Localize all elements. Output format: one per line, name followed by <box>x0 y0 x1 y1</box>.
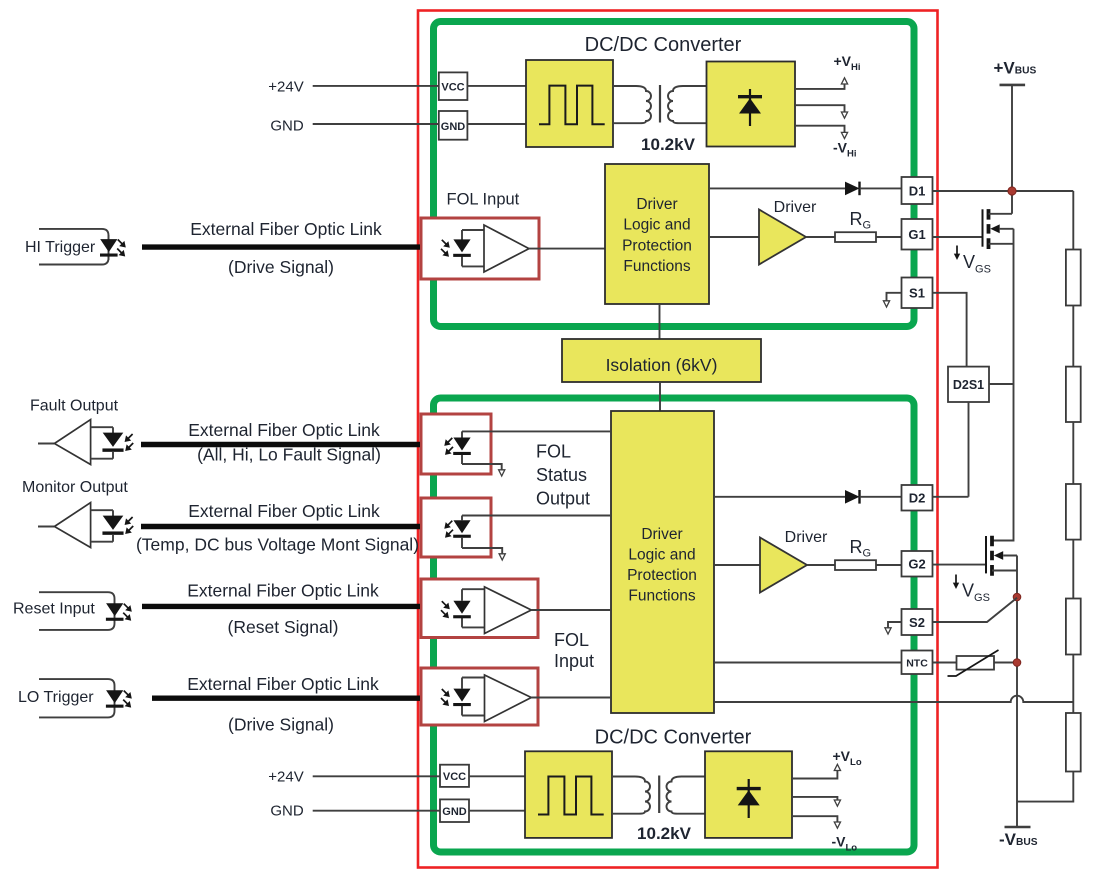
svg-text:(Temp, DC bus Voltage Mont Sig: (Temp, DC bus Voltage Mont Signal) <box>136 535 419 555</box>
svg-text:G1: G1 <box>908 227 925 242</box>
svg-text:Logic and: Logic and <box>623 217 690 234</box>
svg-text:Functions: Functions <box>628 588 695 605</box>
svg-text:External Fiber Optic Link: External Fiber Optic Link <box>187 581 379 601</box>
svg-text:+24V: +24V <box>268 79 303 96</box>
svg-text:+VBUS: +VBUS <box>994 59 1037 78</box>
svg-text:S1: S1 <box>909 286 925 301</box>
svg-text:RG: RG <box>850 209 872 232</box>
svg-text:(Reset Signal): (Reset Signal) <box>228 617 339 637</box>
svg-text:+24V: +24V <box>268 769 303 786</box>
svg-text:FOL Input: FOL Input <box>447 191 520 209</box>
svg-text:VGS: VGS <box>962 581 990 605</box>
svg-text:Monitor Output: Monitor Output <box>22 479 128 496</box>
svg-text:VCC: VCC <box>443 771 466 783</box>
svg-text:GND: GND <box>270 803 304 820</box>
svg-text:Fault Output: Fault Output <box>30 398 119 415</box>
svg-text:10.2kV: 10.2kV <box>641 135 696 154</box>
svg-text:External Fiber Optic Link: External Fiber Optic Link <box>188 420 380 440</box>
svg-text:DC/DC Converter: DC/DC Converter <box>595 727 752 749</box>
svg-text:Reset Input: Reset Input <box>13 601 95 618</box>
svg-text:NTC: NTC <box>906 658 928 670</box>
svg-text:Protection: Protection <box>627 567 697 584</box>
svg-text:FOL: FOL <box>554 630 589 650</box>
svg-text:Driver: Driver <box>774 199 817 216</box>
svg-text:Input: Input <box>554 651 594 671</box>
svg-text:Logic and: Logic and <box>628 547 695 564</box>
svg-text:Output: Output <box>536 489 590 509</box>
svg-text:VCC: VCC <box>441 82 464 94</box>
svg-text:Isolation (6kV): Isolation (6kV) <box>606 355 718 375</box>
svg-text:Status: Status <box>536 465 587 485</box>
svg-text:GND: GND <box>270 118 304 135</box>
svg-text:External Fiber Optic Link: External Fiber Optic Link <box>190 219 382 239</box>
svg-text:Functions: Functions <box>623 258 690 275</box>
svg-text:(Drive Signal): (Drive Signal) <box>228 257 334 277</box>
svg-text:RG: RG <box>850 537 872 560</box>
svg-text:G2: G2 <box>908 557 925 572</box>
svg-text:Driver: Driver <box>785 529 828 546</box>
svg-text:VGS: VGS <box>963 252 991 276</box>
svg-text:-VBUS: -VBUS <box>999 830 1038 849</box>
svg-text:-VHi: -VHi <box>833 140 857 160</box>
svg-text:DC/DC Converter: DC/DC Converter <box>585 34 742 56</box>
svg-text:FOL: FOL <box>536 442 571 462</box>
svg-text:D2S1: D2S1 <box>953 378 984 392</box>
svg-text:Protection: Protection <box>622 237 692 254</box>
svg-text:(Drive Signal): (Drive Signal) <box>228 715 334 735</box>
svg-text:Driver: Driver <box>636 196 677 213</box>
svg-text:External Fiber Optic Link: External Fiber Optic Link <box>187 674 379 694</box>
svg-text:S2: S2 <box>909 615 925 630</box>
svg-text:+VHi: +VHi <box>834 53 861 73</box>
svg-text:10.2kV: 10.2kV <box>637 824 692 843</box>
svg-text:D2: D2 <box>909 491 926 506</box>
svg-text:GND: GND <box>442 806 467 818</box>
svg-text:HI Trigger: HI Trigger <box>25 239 96 256</box>
svg-text:External Fiber Optic Link: External Fiber Optic Link <box>188 501 380 521</box>
svg-text:LO Trigger: LO Trigger <box>18 689 94 706</box>
svg-text:Driver: Driver <box>641 526 682 543</box>
svg-text:(All, Hi, Lo Fault Signal): (All, Hi, Lo Fault Signal) <box>197 445 381 465</box>
svg-text:GND: GND <box>441 121 466 133</box>
svg-text:D1: D1 <box>909 184 926 199</box>
